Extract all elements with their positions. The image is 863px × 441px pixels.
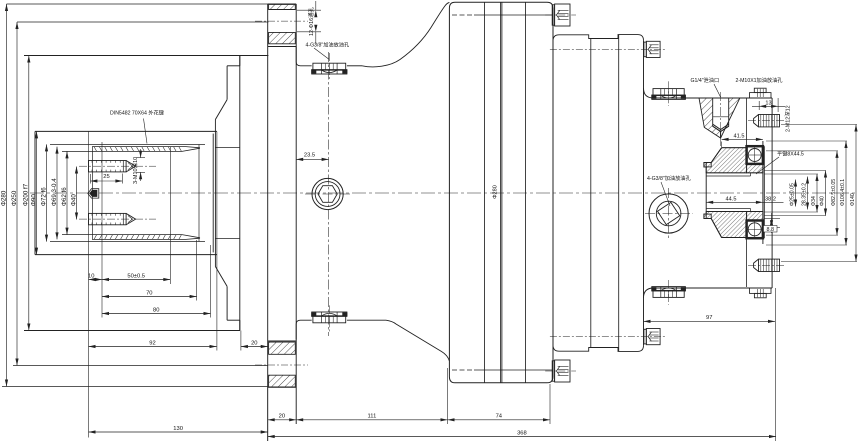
svg-text:23.5: 23.5	[304, 153, 315, 159]
svg-text:Φ280: Φ280	[493, 185, 499, 199]
svg-text:Φ250: Φ250	[11, 190, 18, 206]
svg-text:Φ72 f6: Φ72 f6	[40, 187, 47, 206]
svg-text:38.2: 38.2	[765, 196, 776, 202]
svg-text:Φ34: Φ34	[811, 196, 817, 206]
svg-text:10: 10	[88, 273, 94, 279]
svg-text:Φ40: Φ40	[820, 196, 826, 206]
svg-text:Φ90: Φ90	[30, 194, 37, 206]
svg-text:92: 92	[149, 340, 155, 346]
svg-text:2-M12深12: 2-M12深12	[784, 105, 792, 132]
svg-text:Φ280: Φ280	[0, 190, 7, 206]
svg-text:Φ62 f6: Φ62 f6	[61, 187, 68, 206]
svg-text:130: 130	[173, 426, 183, 432]
svg-text:Φ140: Φ140	[850, 193, 856, 206]
svg-text:20: 20	[279, 414, 285, 420]
svg-text:3-M10深10: 3-M10深10	[131, 157, 139, 184]
svg-text:Φ40: Φ40	[70, 194, 77, 206]
svg-text:8.8: 8.8	[767, 227, 775, 233]
svg-text:97: 97	[706, 315, 712, 321]
svg-text:41.5: 41.5	[734, 134, 745, 140]
svg-text:Φ200 f7: Φ200 f7	[23, 183, 30, 206]
svg-text:50±0.5: 50±0.5	[127, 273, 145, 279]
svg-text:28.35±0.2: 28.35±0.2	[802, 183, 808, 206]
svg-text:25: 25	[103, 174, 109, 180]
svg-text:13: 13	[765, 100, 771, 106]
svg-text:111: 111	[367, 414, 376, 420]
svg-text:Φ69.3-0.4: Φ69.3-0.4	[51, 178, 58, 206]
svg-text:4-G3/8"加油放油孔: 4-G3/8"加油放油孔	[647, 174, 691, 182]
svg-text:G1/4"泄油口: G1/4"泄油口	[691, 76, 720, 84]
svg-text:70: 70	[146, 290, 152, 296]
svg-text:74: 74	[496, 414, 503, 420]
svg-text:12-Φ16通孔: 12-Φ16通孔	[307, 7, 315, 36]
svg-text:80: 80	[153, 307, 159, 313]
svg-text:44.5: 44.5	[726, 196, 737, 202]
svg-text:20: 20	[251, 340, 257, 346]
svg-text:368: 368	[517, 430, 527, 436]
svg-text:DIN5482 70X64 外花键: DIN5482 70X64 外花键	[110, 109, 164, 117]
svg-text:Φ25±0.05: Φ25±0.05	[790, 183, 796, 206]
svg-text:Φ106.4±0.1: Φ106.4±0.1	[840, 179, 846, 206]
svg-text:4-G3/8"加油放油孔: 4-G3/8"加油放油孔	[306, 40, 350, 48]
svg-text:2-M10X1加油放油孔: 2-M10X1加油放油孔	[736, 76, 784, 84]
svg-text:Φ82.5±0.05: Φ82.5±0.05	[831, 179, 837, 206]
